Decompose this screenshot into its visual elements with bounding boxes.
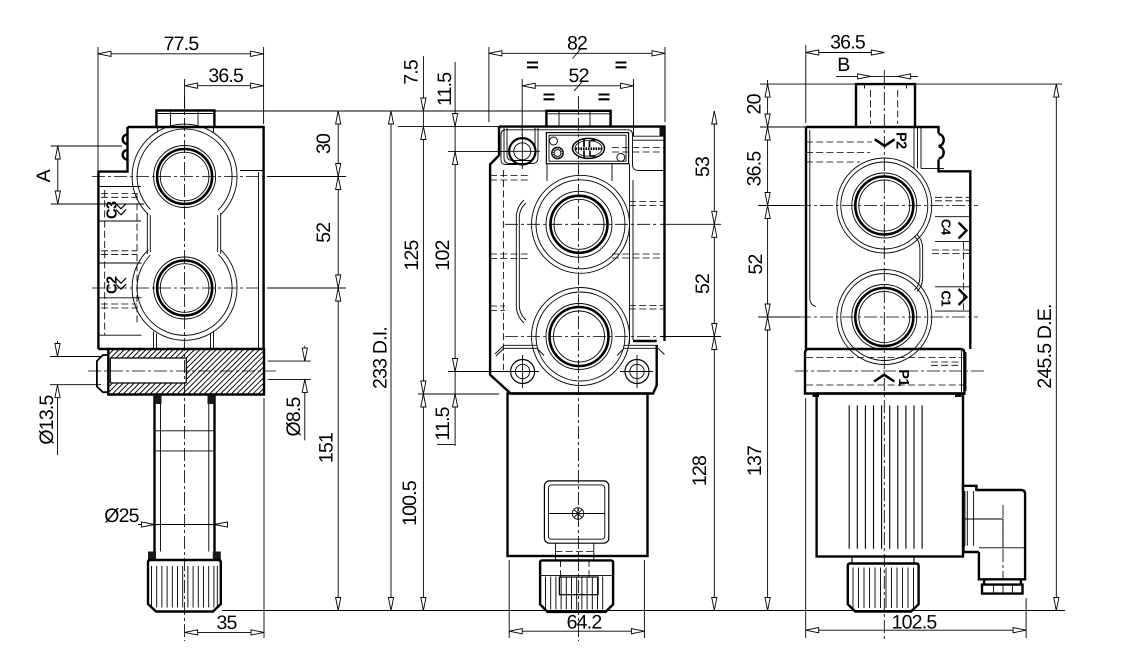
- svg-text:36.5: 36.5: [208, 65, 244, 87]
- svg-text:52: 52: [569, 65, 589, 87]
- svg-text:77.5: 77.5: [164, 33, 200, 55]
- svg-text:C1: C1: [939, 291, 954, 307]
- svg-text:30: 30: [313, 133, 335, 154]
- svg-text:82: 82: [567, 33, 587, 55]
- svg-text:7.5: 7.5: [401, 59, 423, 85]
- svg-text:151: 151: [316, 433, 338, 463]
- svg-text:Ø25: Ø25: [104, 505, 139, 527]
- svg-text:36.5: 36.5: [744, 151, 766, 187]
- svg-text:11.5: 11.5: [432, 406, 454, 440]
- svg-text:20: 20: [744, 93, 766, 114]
- svg-text:125: 125: [401, 239, 423, 270]
- svg-text:52: 52: [692, 274, 714, 294]
- svg-text:11.5: 11.5: [434, 72, 456, 106]
- svg-text:137: 137: [744, 446, 766, 476]
- svg-text:128: 128: [689, 456, 711, 486]
- svg-text:35: 35: [216, 612, 237, 634]
- svg-text:52: 52: [745, 254, 767, 274]
- svg-text:Ø8.5: Ø8.5: [283, 397, 305, 437]
- svg-text:64.2: 64.2: [567, 612, 602, 634]
- svg-text:100.5: 100.5: [399, 480, 421, 526]
- svg-text:P1: P1: [895, 369, 911, 386]
- svg-text:Ø13.5: Ø13.5: [36, 394, 58, 444]
- svg-text:233 D.I.: 233 D.I.: [370, 327, 392, 389]
- svg-text:245.5 D.E.: 245.5 D.E.: [1034, 304, 1056, 388]
- svg-text:B: B: [837, 54, 849, 76]
- svg-text:A: A: [33, 169, 55, 182]
- svg-text:C4: C4: [939, 219, 954, 236]
- svg-text:102: 102: [432, 240, 454, 270]
- svg-text:102.5: 102.5: [892, 612, 938, 634]
- svg-text:P2: P2: [893, 132, 909, 149]
- svg-text:C2: C2: [105, 276, 121, 294]
- svg-text:52: 52: [313, 223, 335, 243]
- svg-text:53: 53: [692, 157, 714, 177]
- svg-text:36.5: 36.5: [830, 32, 866, 54]
